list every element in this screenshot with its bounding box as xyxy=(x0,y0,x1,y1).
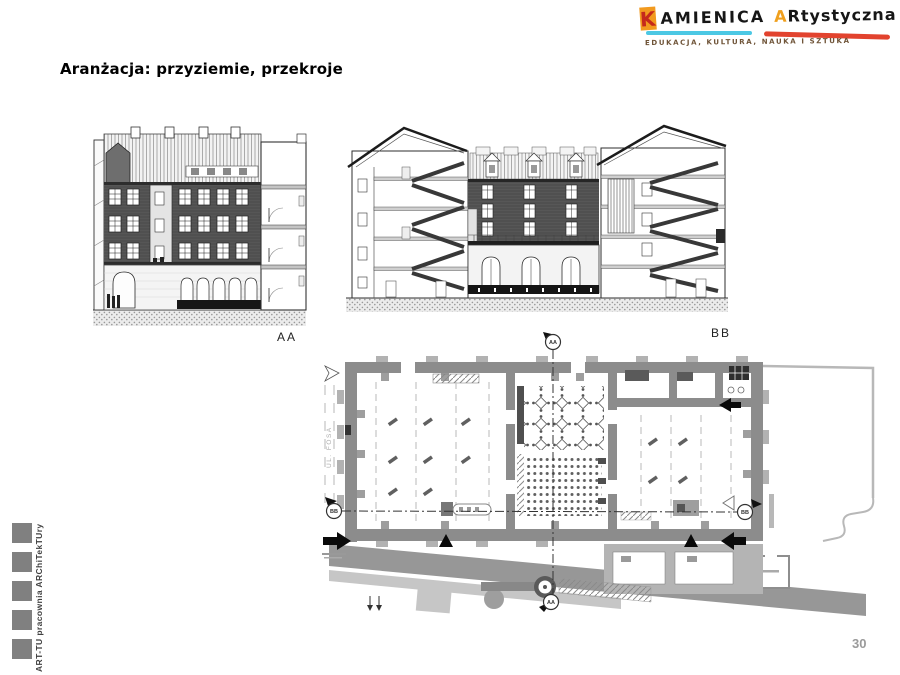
plan-courtyard-boundary xyxy=(751,366,873,588)
plan-courtyard xyxy=(517,386,606,516)
street-label: UL. FOSA xyxy=(326,426,333,468)
logo-subtitle: EDUKACJA, KULTURA, NAUKA I SZTUKA xyxy=(645,37,851,47)
sidebar-square xyxy=(12,610,32,630)
logo-word-artystyczna-rest: Rtystyczna xyxy=(787,5,896,26)
studio-label: ART-TU pracownia ARChiTekTUry xyxy=(34,512,44,672)
plan-cafe-tables xyxy=(524,386,604,450)
sidebar-square xyxy=(12,552,32,572)
logo-word-kamienica: AMIENICA xyxy=(660,7,765,28)
floor-plan-svg: UL. FOSA xyxy=(321,330,886,632)
marker-bb-left: BB xyxy=(330,509,338,515)
floor-plan-drawing: UL. FOSA xyxy=(321,330,886,632)
plan-street-ul-fosa: UL. FOSA xyxy=(325,385,334,505)
marker-aa-bottom: AA xyxy=(547,600,555,606)
marker-bb-right: BB xyxy=(741,510,749,516)
section-aa-svg xyxy=(93,126,313,332)
section-aa-label: AA xyxy=(270,330,304,344)
logo-k-letter: K xyxy=(639,6,656,31)
plan-right-hall xyxy=(621,415,731,520)
sidebar-square xyxy=(12,581,32,601)
plan-wall-mark xyxy=(345,425,351,435)
triangle-outline xyxy=(723,496,734,510)
plan-left-hall xyxy=(376,382,491,522)
entrance-arrow-white xyxy=(325,366,339,381)
logo-a-orange: A xyxy=(774,7,788,26)
slide: K AMIENICA ARtystyczna EDUKACJA, KULTURA… xyxy=(0,0,900,675)
sidebar-square xyxy=(12,523,32,543)
plan-entry-stair xyxy=(433,374,479,383)
aa-ground xyxy=(93,310,306,326)
sidebar-square xyxy=(12,639,32,659)
section-bb-svg xyxy=(346,121,731,322)
bb-ground xyxy=(346,298,728,312)
bb-left-block xyxy=(348,128,468,298)
aa-roof xyxy=(104,127,261,184)
bb-right-block xyxy=(597,126,726,298)
marker-aa-top: AA xyxy=(549,340,557,346)
logo-wordmark: K AMIENICA ARtystyczna xyxy=(640,3,895,30)
plan-seat-grid xyxy=(524,454,602,516)
logo-word-artystyczna: ARtystyczna xyxy=(774,5,897,26)
section-aa-drawing xyxy=(93,126,313,332)
logo: K AMIENICA ARtystyczna EDUKACJA, KULTURA… xyxy=(640,5,895,53)
aa-arch-portal xyxy=(113,272,135,308)
aa-ground-floor xyxy=(104,265,261,310)
bb-center-block xyxy=(468,147,599,294)
aa-party-wall xyxy=(94,140,104,310)
section-bb-drawing xyxy=(346,121,731,322)
page-number: 30 xyxy=(852,636,866,651)
logo-cyan-underline xyxy=(646,31,752,35)
page-title: Aranżacja: przyziemie, przekroje xyxy=(60,60,343,78)
logo-k-square: K xyxy=(639,7,656,31)
aa-right-wing xyxy=(261,134,306,310)
